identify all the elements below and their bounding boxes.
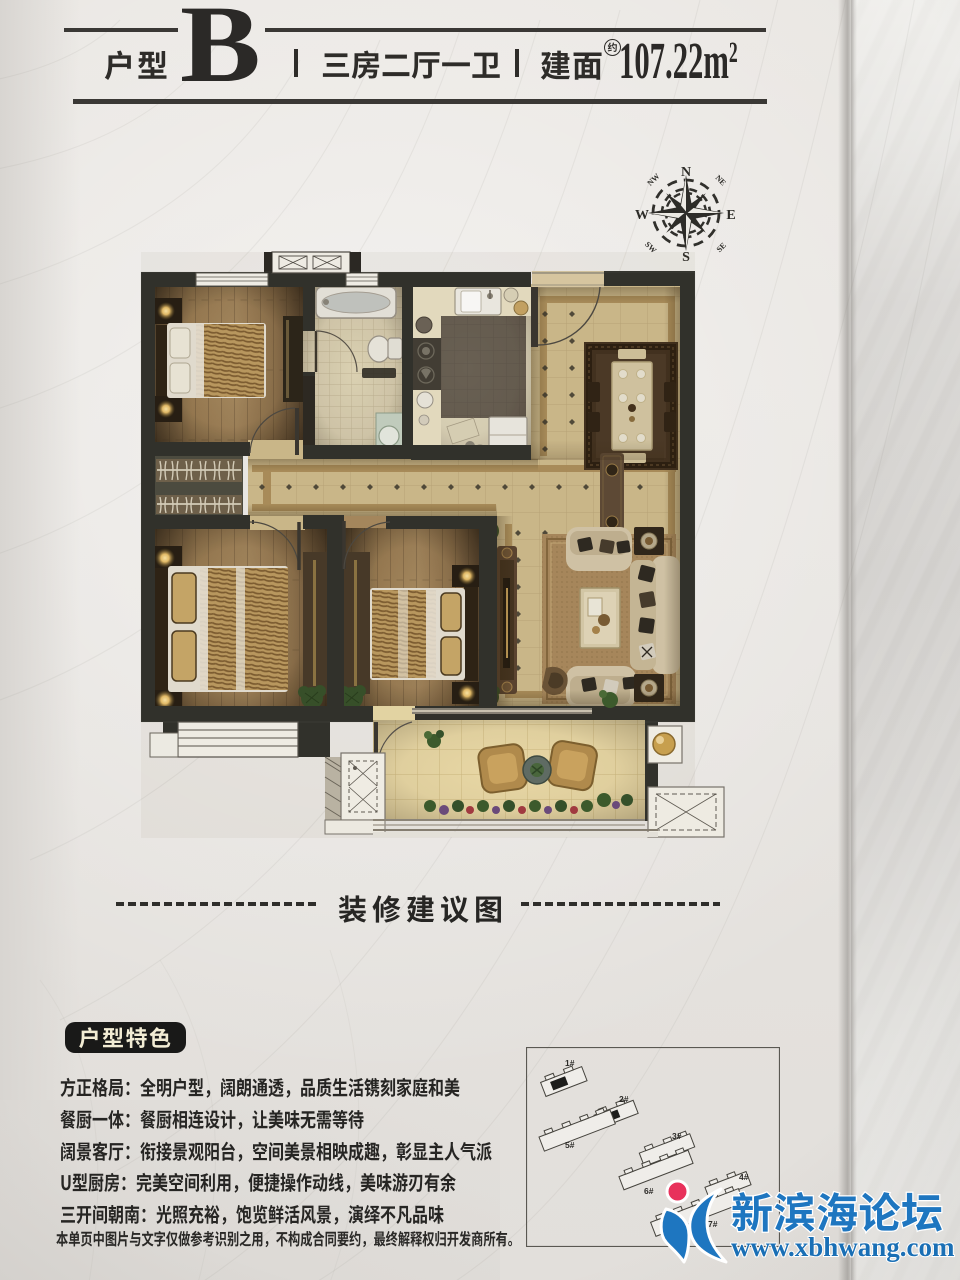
svg-text:2#: 2# bbox=[619, 1094, 629, 1104]
svg-text:E: E bbox=[726, 208, 735, 223]
svg-text:www.xbhwang.com: www.xbhwang.com bbox=[731, 1232, 955, 1262]
svg-text:5#: 5# bbox=[565, 1140, 575, 1150]
svg-text:3#: 3# bbox=[672, 1131, 682, 1141]
svg-text:N: N bbox=[681, 165, 691, 180]
svg-text:NW: NW bbox=[645, 172, 661, 188]
svg-text:1#: 1# bbox=[565, 1058, 575, 1068]
svg-text:W: W bbox=[635, 208, 649, 223]
svg-text:NE: NE bbox=[714, 173, 728, 187]
